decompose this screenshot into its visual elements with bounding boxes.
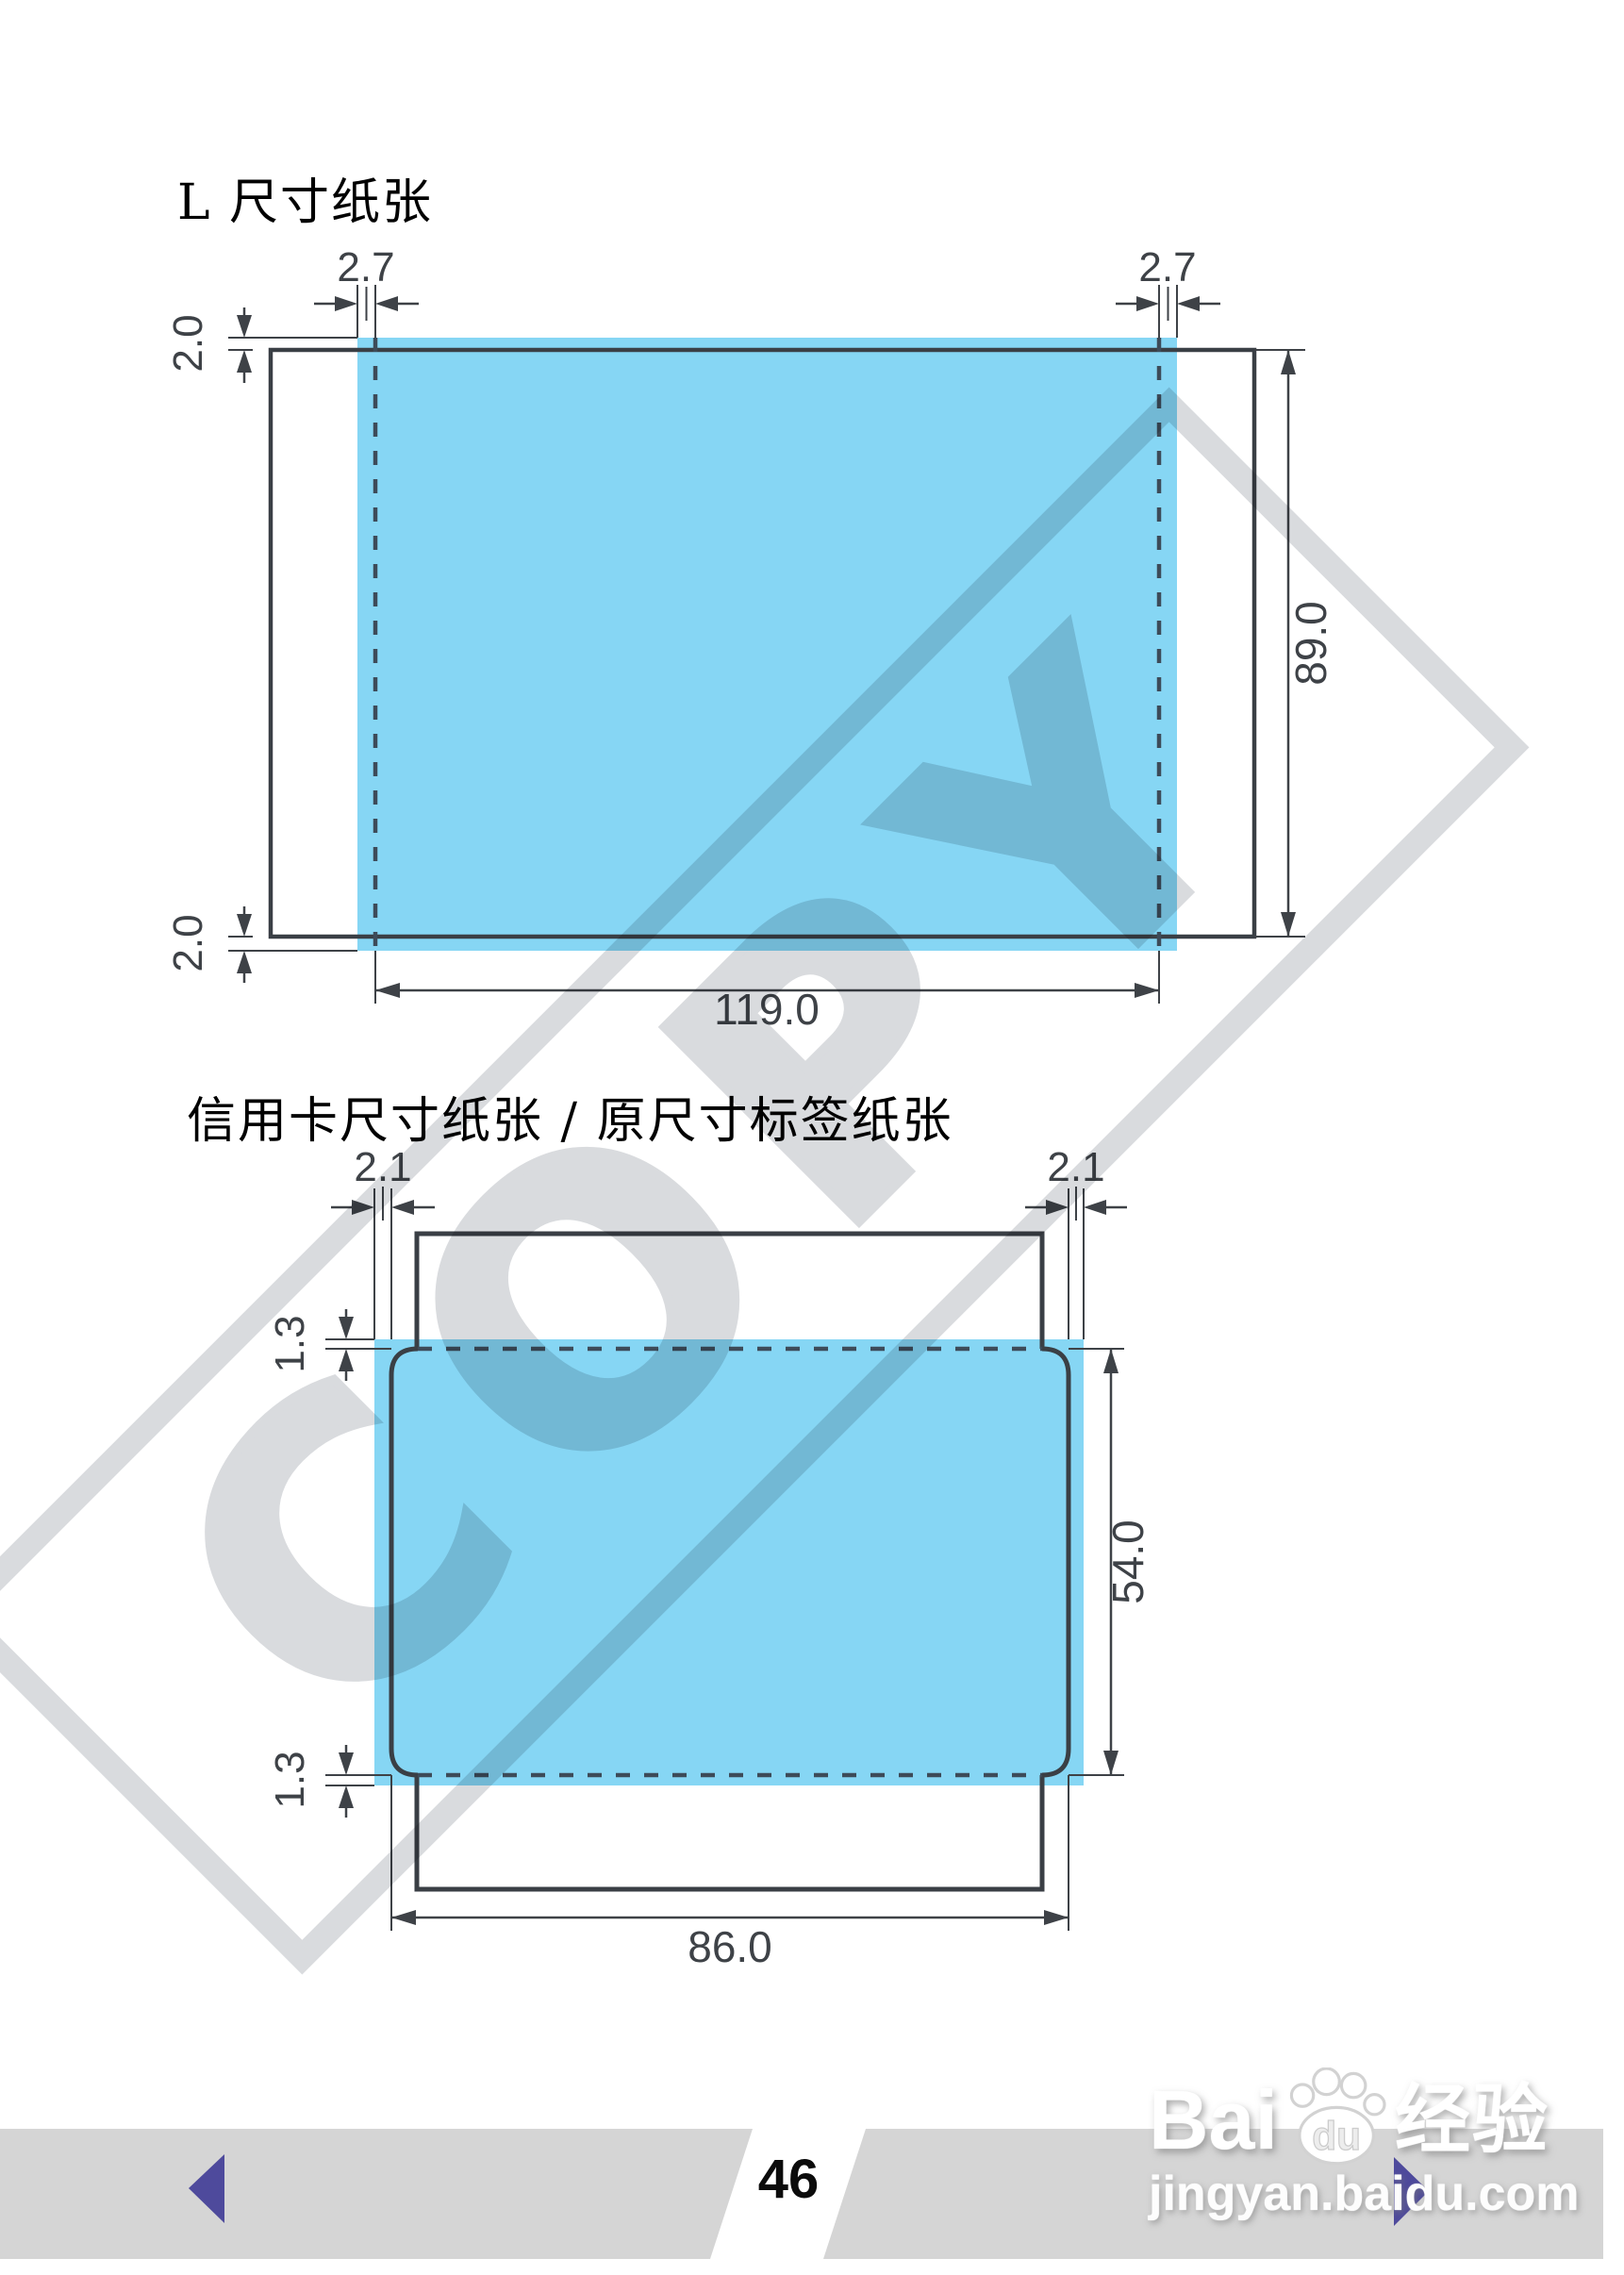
dimension-left-bottom: 1.3 [267, 1745, 391, 1818]
dimension-left-bottom: 2.0 [165, 906, 357, 983]
dimension-top-left: 2.7 [314, 244, 419, 338]
baidu-jingyan-url: jingyan.baidu.com [1149, 2166, 1580, 2222]
baidu-paw-icon: du [1282, 2067, 1387, 2167]
dimension-left-top: 1.3 [267, 1309, 391, 1381]
dimension-label-left-bottom: 1.3 [267, 1751, 313, 1808]
dimension-height: 89.0 [1254, 350, 1335, 937]
dimension-label-top-right: 2.7 [1138, 244, 1196, 291]
manual-page: L 尺寸纸张 2.7 2.7 [0, 0, 1624, 2275]
baidu-logo-jingyan: 经验 [1389, 2083, 1549, 2162]
dimension-width: 86.0 [391, 1775, 1069, 1971]
card-size-paper-diagram: 2.1 2.1 1.3 [141, 1122, 1367, 1981]
dimension-label-top-right: 2.1 [1047, 1144, 1104, 1190]
l-size-paper-diagram: 2.7 2.7 2.0 [141, 217, 1367, 1056]
dimension-label-top-left: 2.1 [354, 1144, 411, 1190]
baidu-logo-du: du [1312, 2114, 1361, 2158]
print-area [357, 338, 1177, 951]
dimension-label-left-top: 2.0 [165, 314, 211, 372]
dimension-label-left-top: 1.3 [267, 1315, 313, 1372]
dimension-label-height: 54.0 [1103, 1519, 1152, 1604]
dimension-top-right: 2.7 [1116, 244, 1220, 338]
dimension-label-width: 119.0 [714, 985, 820, 1034]
dimension-label-top-left: 2.7 [337, 244, 394, 291]
dimension-label-width: 86.0 [688, 1922, 772, 1971]
sheet-top-stub [417, 1234, 1042, 1349]
dimension-width: 119.0 [375, 951, 1159, 1034]
baidu-logo: Bai du 经验 [1149, 2067, 1580, 2162]
dimension-label-height: 89.0 [1286, 601, 1335, 686]
sheet-bottom-stub [417, 1775, 1042, 1889]
baidu-logo-bai: Bai [1149, 2079, 1278, 2162]
print-area [374, 1339, 1084, 1785]
baidu-jingyan-watermark: Bai du 经验 jingyan.baidu.com [1149, 2067, 1580, 2222]
dimension-left-top: 2.0 [165, 307, 357, 383]
dimension-label-left-bottom: 2.0 [165, 914, 211, 971]
page-number: 46 [758, 2149, 820, 2210]
